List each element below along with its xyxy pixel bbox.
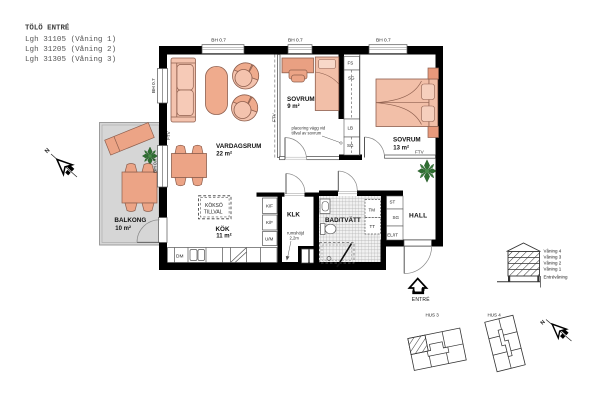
svg-text:TILLVAL: TILLVAL xyxy=(204,209,223,215)
svg-text:Lgh 31305 (Våning 3): Lgh 31305 (Våning 3) xyxy=(25,55,116,64)
svg-text:Våning 4: Våning 4 xyxy=(544,247,562,253)
svg-text:BH 0.7: BH 0.7 xyxy=(153,158,159,173)
svg-text:Våning 1: Våning 1 xyxy=(544,265,562,271)
svg-text:FS: FS xyxy=(348,61,354,66)
svg-text:BH 0.7: BH 0.7 xyxy=(211,37,226,43)
svg-text:TT: TT xyxy=(370,224,376,229)
svg-text:Entrévåning: Entrévåning xyxy=(544,273,569,279)
svg-text:N: N xyxy=(540,319,547,326)
svg-text:13 m²: 13 m² xyxy=(393,144,409,151)
svg-text:BH 0.7: BH 0.7 xyxy=(376,37,391,43)
svg-text:10 m²: 10 m² xyxy=(115,225,131,232)
svg-text:FTV: FTV xyxy=(166,130,171,140)
svg-text:KÖK: KÖK xyxy=(216,224,230,233)
svg-text:HUS 3: HUS 3 xyxy=(426,312,440,317)
svg-text:tillval av sovrum: tillval av sovrum xyxy=(292,131,322,136)
svg-text:ST: ST xyxy=(390,199,396,204)
svg-text:Våning 3: Våning 3 xyxy=(544,253,562,259)
svg-text:Lgh 31105 (Våning 1): Lgh 31105 (Våning 1) xyxy=(25,35,116,44)
svg-text:LB: LB xyxy=(348,126,354,131)
svg-text:SG: SG xyxy=(348,76,355,81)
svg-text:ENTRÉ: ENTRÉ xyxy=(412,296,430,303)
svg-text:N: N xyxy=(44,148,51,155)
svg-text:HALL: HALL xyxy=(409,213,427,220)
svg-text:KLK: KLK xyxy=(287,211,300,218)
svg-text:K/F: K/F xyxy=(266,203,273,208)
svg-text:BH 0.7: BH 0.7 xyxy=(288,37,303,43)
svg-text:Våning 2: Våning 2 xyxy=(544,259,562,265)
svg-text:EL/IT: EL/IT xyxy=(387,232,398,237)
svg-text:KÖKSÖ: KÖKSÖ xyxy=(205,202,223,209)
svg-text:22 m²: 22 m² xyxy=(216,150,232,157)
svg-text:Lgh 31205 (Våning 2): Lgh 31205 (Våning 2) xyxy=(25,45,116,54)
svg-text:U/M: U/M xyxy=(265,236,274,241)
svg-text:VARDAGSRUM: VARDAGSRUM xyxy=(216,143,261,150)
svg-text:SOVRUM: SOVRUM xyxy=(287,96,315,103)
svg-text:SG: SG xyxy=(347,143,354,148)
svg-text:K/F: K/F xyxy=(266,220,273,225)
svg-text:2,2m: 2,2m xyxy=(290,236,300,241)
svg-text:FTV: FTV xyxy=(272,112,277,122)
svg-text:BH 0.7: BH 0.7 xyxy=(151,78,157,93)
svg-text:TM: TM xyxy=(369,208,376,213)
svg-text:SG: SG xyxy=(393,215,400,220)
svg-text:11 m²: 11 m² xyxy=(216,232,231,239)
svg-text:TÖLÖ ENTRÉ: TÖLÖ ENTRÉ xyxy=(25,23,70,32)
svg-text:HUS 4: HUS 4 xyxy=(488,312,502,317)
svg-text:DM: DM xyxy=(176,253,183,259)
svg-text:BAD/TVÄTT: BAD/TVÄTT xyxy=(325,216,361,224)
svg-text:FTV: FTV xyxy=(415,150,425,155)
svg-text:BALKONG: BALKONG xyxy=(114,217,146,224)
svg-text:9 m²: 9 m² xyxy=(287,103,299,110)
svg-text:SOVRUM: SOVRUM xyxy=(393,136,421,143)
